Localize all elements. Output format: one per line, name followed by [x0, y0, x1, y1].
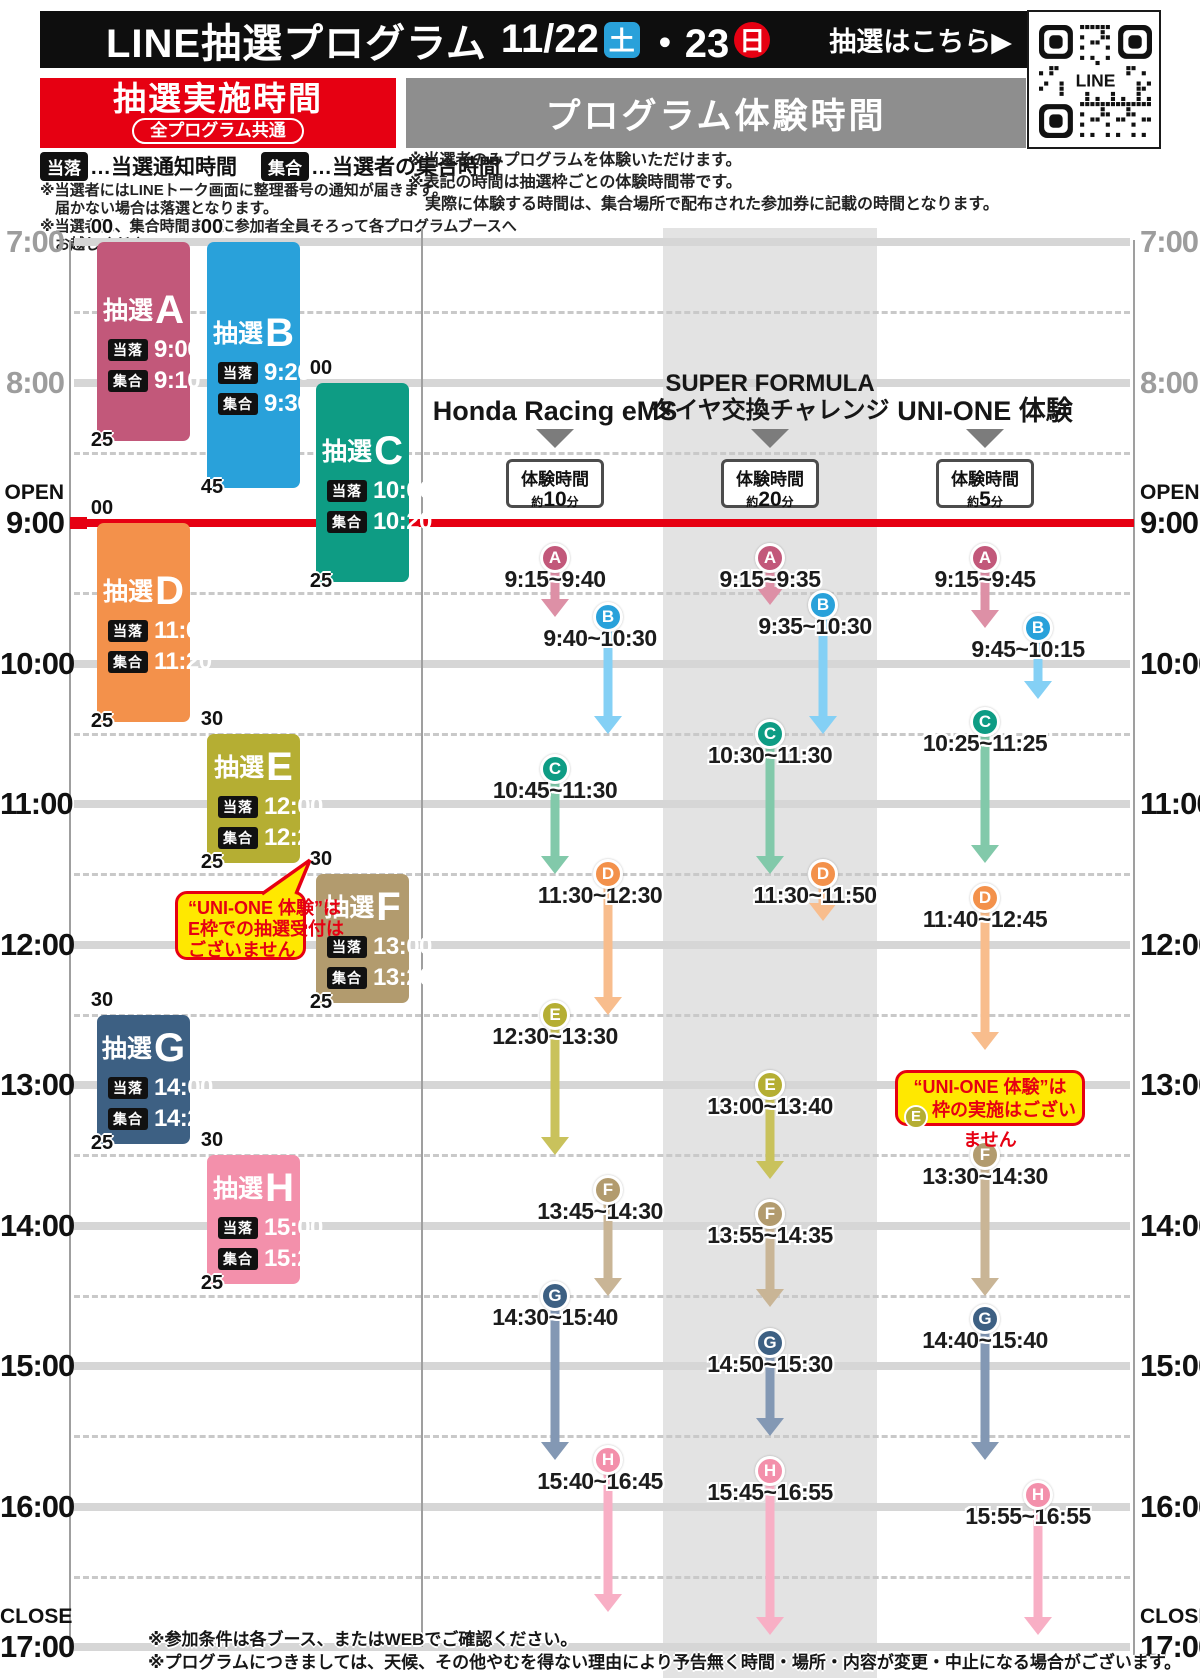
block-end-minute-label: 25	[190, 851, 234, 874]
duration-label: 体験時間	[939, 465, 1031, 490]
open-label-left: OPEN	[0, 482, 64, 504]
B-win-row: 当落9:20	[207, 359, 300, 387]
uni-one-no-e-slot-note: “UNI-ONE 体験”は E枠の実施はございません	[895, 1070, 1085, 1126]
hour-label-left-7:00: 7:00	[0, 225, 64, 259]
A-win-row: 当落9:00	[97, 336, 190, 364]
meet-time: 15:20	[264, 1245, 323, 1273]
block-end-minute-label: 45	[190, 476, 234, 499]
hour-label-left-14:00: 14:00	[0, 1209, 64, 1243]
slot-letter-circle-G: G	[970, 1304, 1000, 1334]
slot-time-range-H: 15:55~16:55	[965, 1503, 1091, 1530]
lottery-block-title: 抽選B	[213, 311, 294, 356]
slot-arrowhead-E	[541, 1137, 569, 1155]
block-start-minute-label: 30	[190, 1129, 234, 1152]
event-schedule-page: LINE抽選プログラム 11/22 土 ・23 日 抽選はこちら▶ LINE 抽…	[0, 0, 1200, 1678]
block-end-minute-label: 25	[80, 1132, 124, 1155]
uni-one-e-lottery-note: “UNI-ONE 体験”は E枠での抽選受付は ございません	[175, 891, 306, 960]
slot-letter-circle-E: E	[755, 1070, 785, 1100]
footer-notes: ※参加条件は各ブース、またはWEBでご確認ください。 ※プログラムにつきましては…	[148, 1628, 1181, 1674]
win-badge: 当落	[218, 362, 258, 384]
slot-letter-circle-A: A	[755, 543, 785, 573]
slot-arrowhead-A	[541, 599, 569, 617]
column-pointer-triangle	[966, 429, 1004, 448]
half-hour-gridline	[74, 1576, 1130, 1579]
note-line: “UNI-ONE 体験”は	[188, 898, 303, 919]
slot-arrowhead-G	[756, 1418, 784, 1436]
right-axis-line	[1133, 240, 1135, 1655]
half-hour-gridline	[74, 1435, 1130, 1438]
block-start-minute-label: 30	[190, 708, 234, 731]
hour-label-right-15:00: 15:00	[1140, 1349, 1200, 1383]
note-line: ※プログラムにつきましては、天候、その他やむを得ない理由により予告無く時間・場所…	[148, 1651, 1181, 1674]
C-win-row: 当落10:00	[316, 477, 409, 505]
slot-letter-circle-D: D	[970, 883, 1000, 913]
duration-box-2: 体験時間約20分	[721, 459, 819, 508]
hour-label-left-10:00: 10:00	[0, 647, 64, 681]
lottery-block-E: 抽選E当落12:00集合12:20	[207, 734, 300, 863]
slot-letter-circle-C: C	[540, 754, 570, 784]
slot-arrowhead-C	[756, 856, 784, 874]
lottery-block-B: 抽選B当落9:20集合9:30	[207, 242, 300, 488]
slot-letter-circle-H: H	[1023, 1480, 1053, 1510]
slot-letter-circle-H: H	[593, 1445, 623, 1475]
program-column-title-3: UNI-ONE 体験	[897, 398, 1073, 425]
meet-time: 13:20	[373, 964, 432, 992]
meet-badge: 集合	[218, 393, 258, 415]
hour-label-left-11:00: 11:00	[0, 787, 64, 821]
E-win-row: 当落12:00	[207, 793, 300, 821]
slot-letter-circle-D: D	[593, 859, 623, 889]
hour-label-right-13:00: 13:00	[1140, 1068, 1200, 1102]
slot-letter-circle-E: E	[540, 1000, 570, 1030]
note-line: ございません	[188, 940, 303, 961]
win-time: 14:00	[154, 1074, 213, 1102]
duration-box-3: 体験時間約5分	[936, 459, 1034, 508]
hour-label-right-14:00: 14:00	[1140, 1209, 1200, 1243]
win-time: 11:00	[154, 617, 212, 645]
win-time: 10:00	[373, 477, 432, 505]
slot-letter-circle-H: H	[755, 1456, 785, 1486]
duration-label: 体験時間	[509, 465, 601, 490]
block-end-minute-label: 25	[190, 1272, 234, 1295]
hour-label-right-7:00: 7:00	[1140, 225, 1200, 259]
note-line: ※参加条件は各ブース、またはWEBでご確認ください。	[148, 1628, 1181, 1651]
duration-label: 体験時間	[724, 465, 816, 490]
lottery-block-C: 抽選C当落10:00集合10:20	[316, 383, 409, 582]
slot-letter-circle-F: F	[755, 1199, 785, 1229]
column-pointer-triangle	[536, 429, 574, 448]
H-win-row: 当落15:00	[207, 1214, 300, 1242]
close-label-left: CLOSE	[0, 1606, 64, 1628]
win-badge: 当落	[327, 936, 367, 958]
program-column-title-1: Honda Racing eMS	[433, 398, 678, 425]
win-badge: 当落	[108, 1077, 148, 1099]
duration-value: 約5分	[939, 490, 1031, 512]
slot-arrowhead-D	[971, 1032, 999, 1050]
slot-arrowhead-B	[594, 716, 622, 734]
lottery-block-title: 抽選E	[214, 745, 293, 790]
hour-label-right-11:00: 11:00	[1140, 787, 1200, 821]
block-end-minute-label: 25	[299, 991, 343, 1014]
note-line: “UNI-ONE 体験”は	[898, 1076, 1082, 1099]
hour-label-right-10:00: 10:00	[1140, 647, 1200, 681]
meet-badge: 集合	[108, 1108, 148, 1130]
title-line: Honda Racing eMS	[433, 398, 678, 425]
slot-letter-circle-C: C	[755, 719, 785, 749]
slot-letter-circle-C: C	[970, 707, 1000, 737]
hour-label-right-12:00: 12:00	[1140, 928, 1200, 962]
block-end-minute-label: 25	[80, 710, 124, 733]
hour-label-left-15:00: 15:00	[0, 1349, 64, 1383]
lottery-block-title: 抽選A	[103, 288, 184, 333]
lottery-block-title: 抽選D	[103, 569, 184, 614]
lottery-block-title: 抽選C	[322, 429, 403, 474]
note-line: E枠での抽選受付は	[188, 919, 303, 940]
slot-letter-circle-B: B	[593, 602, 623, 632]
duration-value: 約10分	[509, 490, 601, 512]
slot-arrowhead-C	[541, 856, 569, 874]
slot-arrowhead-F	[594, 1278, 622, 1296]
hour-gridline-15:00	[74, 1362, 1130, 1370]
hour-label-right-16:00: 16:00	[1140, 1490, 1200, 1524]
slot-letter-circle-B: B	[808, 590, 838, 620]
F-meet-row: 集合13:20	[316, 964, 409, 992]
lottery-block-title: 抽選H	[213, 1166, 294, 1211]
slot-letter-circle-A: A	[540, 543, 570, 573]
duration-box-1: 体験時間約10分	[506, 459, 604, 508]
e-slot-circle: E	[904, 1105, 928, 1129]
meet-time: 11:20	[154, 648, 212, 676]
hour-label-left-16:00: 16:00	[0, 1490, 64, 1524]
title-line: UNI-ONE 体験	[897, 398, 1073, 425]
hour-label-right-8:00: 8:00	[1140, 366, 1200, 400]
slot-arrowhead-F	[756, 1289, 784, 1307]
slot-letter-circle-G: G	[755, 1328, 785, 1358]
slot-time-range-B: 9:45~10:15	[971, 636, 1084, 663]
timeline: 7:007:008:008:009:009:00OPENOPEN10:0010:…	[0, 0, 1200, 1678]
meet-time: 10:20	[373, 508, 432, 536]
win-time: 15:00	[264, 1214, 323, 1242]
meet-badge: 集合	[327, 967, 367, 989]
hour-label-left-8:00: 8:00	[0, 366, 64, 400]
lottery-block-G: 抽選G当落14:00集合14:20	[97, 1015, 190, 1144]
hour-label-left-12:00: 12:00	[0, 928, 64, 962]
win-time: 12:00	[264, 793, 323, 821]
hour-label-left-9:00: 9:00	[0, 506, 64, 540]
meet-badge: 集合	[218, 827, 258, 849]
title-line: タイヤ交換チャレンジ	[650, 397, 889, 424]
open-label-right: OPEN	[1140, 482, 1200, 504]
block-start-minute-label: 30	[80, 989, 124, 1012]
slot-arrowhead-G	[971, 1442, 999, 1460]
title-line: SUPER FORMULA	[650, 370, 889, 397]
slot-arrowhead-D	[594, 997, 622, 1015]
E-meet-row: 集合12:20	[207, 824, 300, 852]
block-end-minute-label: 25	[299, 570, 343, 593]
duration-value: 約20分	[724, 490, 816, 512]
meet-badge: 集合	[218, 1248, 258, 1270]
slot-letter-circle-B: B	[1023, 613, 1053, 643]
B-meet-row: 集合9:30	[207, 390, 300, 418]
slot-arrowhead-B	[809, 716, 837, 734]
block-start-minute-label: 00	[80, 497, 124, 520]
win-time: 13:00	[373, 933, 432, 961]
H-meet-row: 集合15:20	[207, 1245, 300, 1273]
slot-arrowhead-B	[1024, 681, 1052, 699]
block-start-minute-label: 00	[80, 216, 124, 239]
block-end-minute-label: 25	[80, 429, 124, 452]
slot-arrowhead-G	[541, 1442, 569, 1460]
lottery-block-A: 抽選A当落9:00集合9:10	[97, 242, 190, 441]
slot-letter-circle-D: D	[808, 859, 838, 889]
slot-letter-circle-G: G	[540, 1281, 570, 1311]
G-meet-row: 集合14:20	[97, 1105, 190, 1133]
win-badge: 当落	[108, 339, 148, 361]
C-meet-row: 集合10:20	[316, 508, 409, 536]
slot-letter-circle-A: A	[970, 543, 1000, 573]
win-time: 9:00	[154, 336, 200, 364]
slot-arrowhead-E	[756, 1161, 784, 1179]
meet-time: 9:10	[154, 367, 200, 395]
hour-label-left-13:00: 13:00	[0, 1068, 64, 1102]
win-badge: 当落	[108, 620, 148, 642]
hour-label-right-9:00: 9:00	[1140, 506, 1200, 540]
A-meet-row: 集合9:10	[97, 367, 190, 395]
lottery-block-H: 抽選H当落15:00集合15:20	[207, 1155, 300, 1284]
meet-badge: 集合	[327, 511, 367, 533]
slot-arrowhead-C	[971, 845, 999, 863]
meet-badge: 集合	[108, 370, 148, 392]
slot-arrowhead-F	[971, 1278, 999, 1296]
slot-letter-circle-F: F	[593, 1175, 623, 1205]
column-pointer-triangle	[751, 429, 789, 448]
win-badge: 当落	[218, 1217, 258, 1239]
win-badge: 当落	[327, 480, 367, 502]
G-win-row: 当落14:00	[97, 1074, 190, 1102]
D-win-row: 当落11:00	[97, 617, 190, 645]
lottery-block-title: 抽選G	[102, 1026, 185, 1071]
block-start-minute-label: 00	[190, 216, 234, 239]
slot-arrowhead-H	[594, 1594, 622, 1612]
meet-time: 9:30	[264, 390, 310, 418]
meet-badge: 集合	[108, 651, 148, 673]
win-badge: 当落	[218, 796, 258, 818]
hour-label-left-17:00: 17:00	[0, 1630, 64, 1664]
bubble-tail-icon	[250, 856, 320, 898]
close-label-right: CLOSE	[1140, 1606, 1200, 1628]
D-meet-row: 集合11:20	[97, 648, 190, 676]
block-start-minute-label: 00	[299, 357, 343, 380]
lottery-block-D: 抽選D当落11:00集合11:20	[97, 523, 190, 722]
program-column-title-2: SUPER FORMULAタイヤ交換チャレンジ	[650, 370, 889, 424]
slot-arrowhead-A	[971, 610, 999, 628]
note-line: E枠の実施はございません	[898, 1099, 1082, 1152]
open-time-red-line	[70, 519, 1134, 527]
